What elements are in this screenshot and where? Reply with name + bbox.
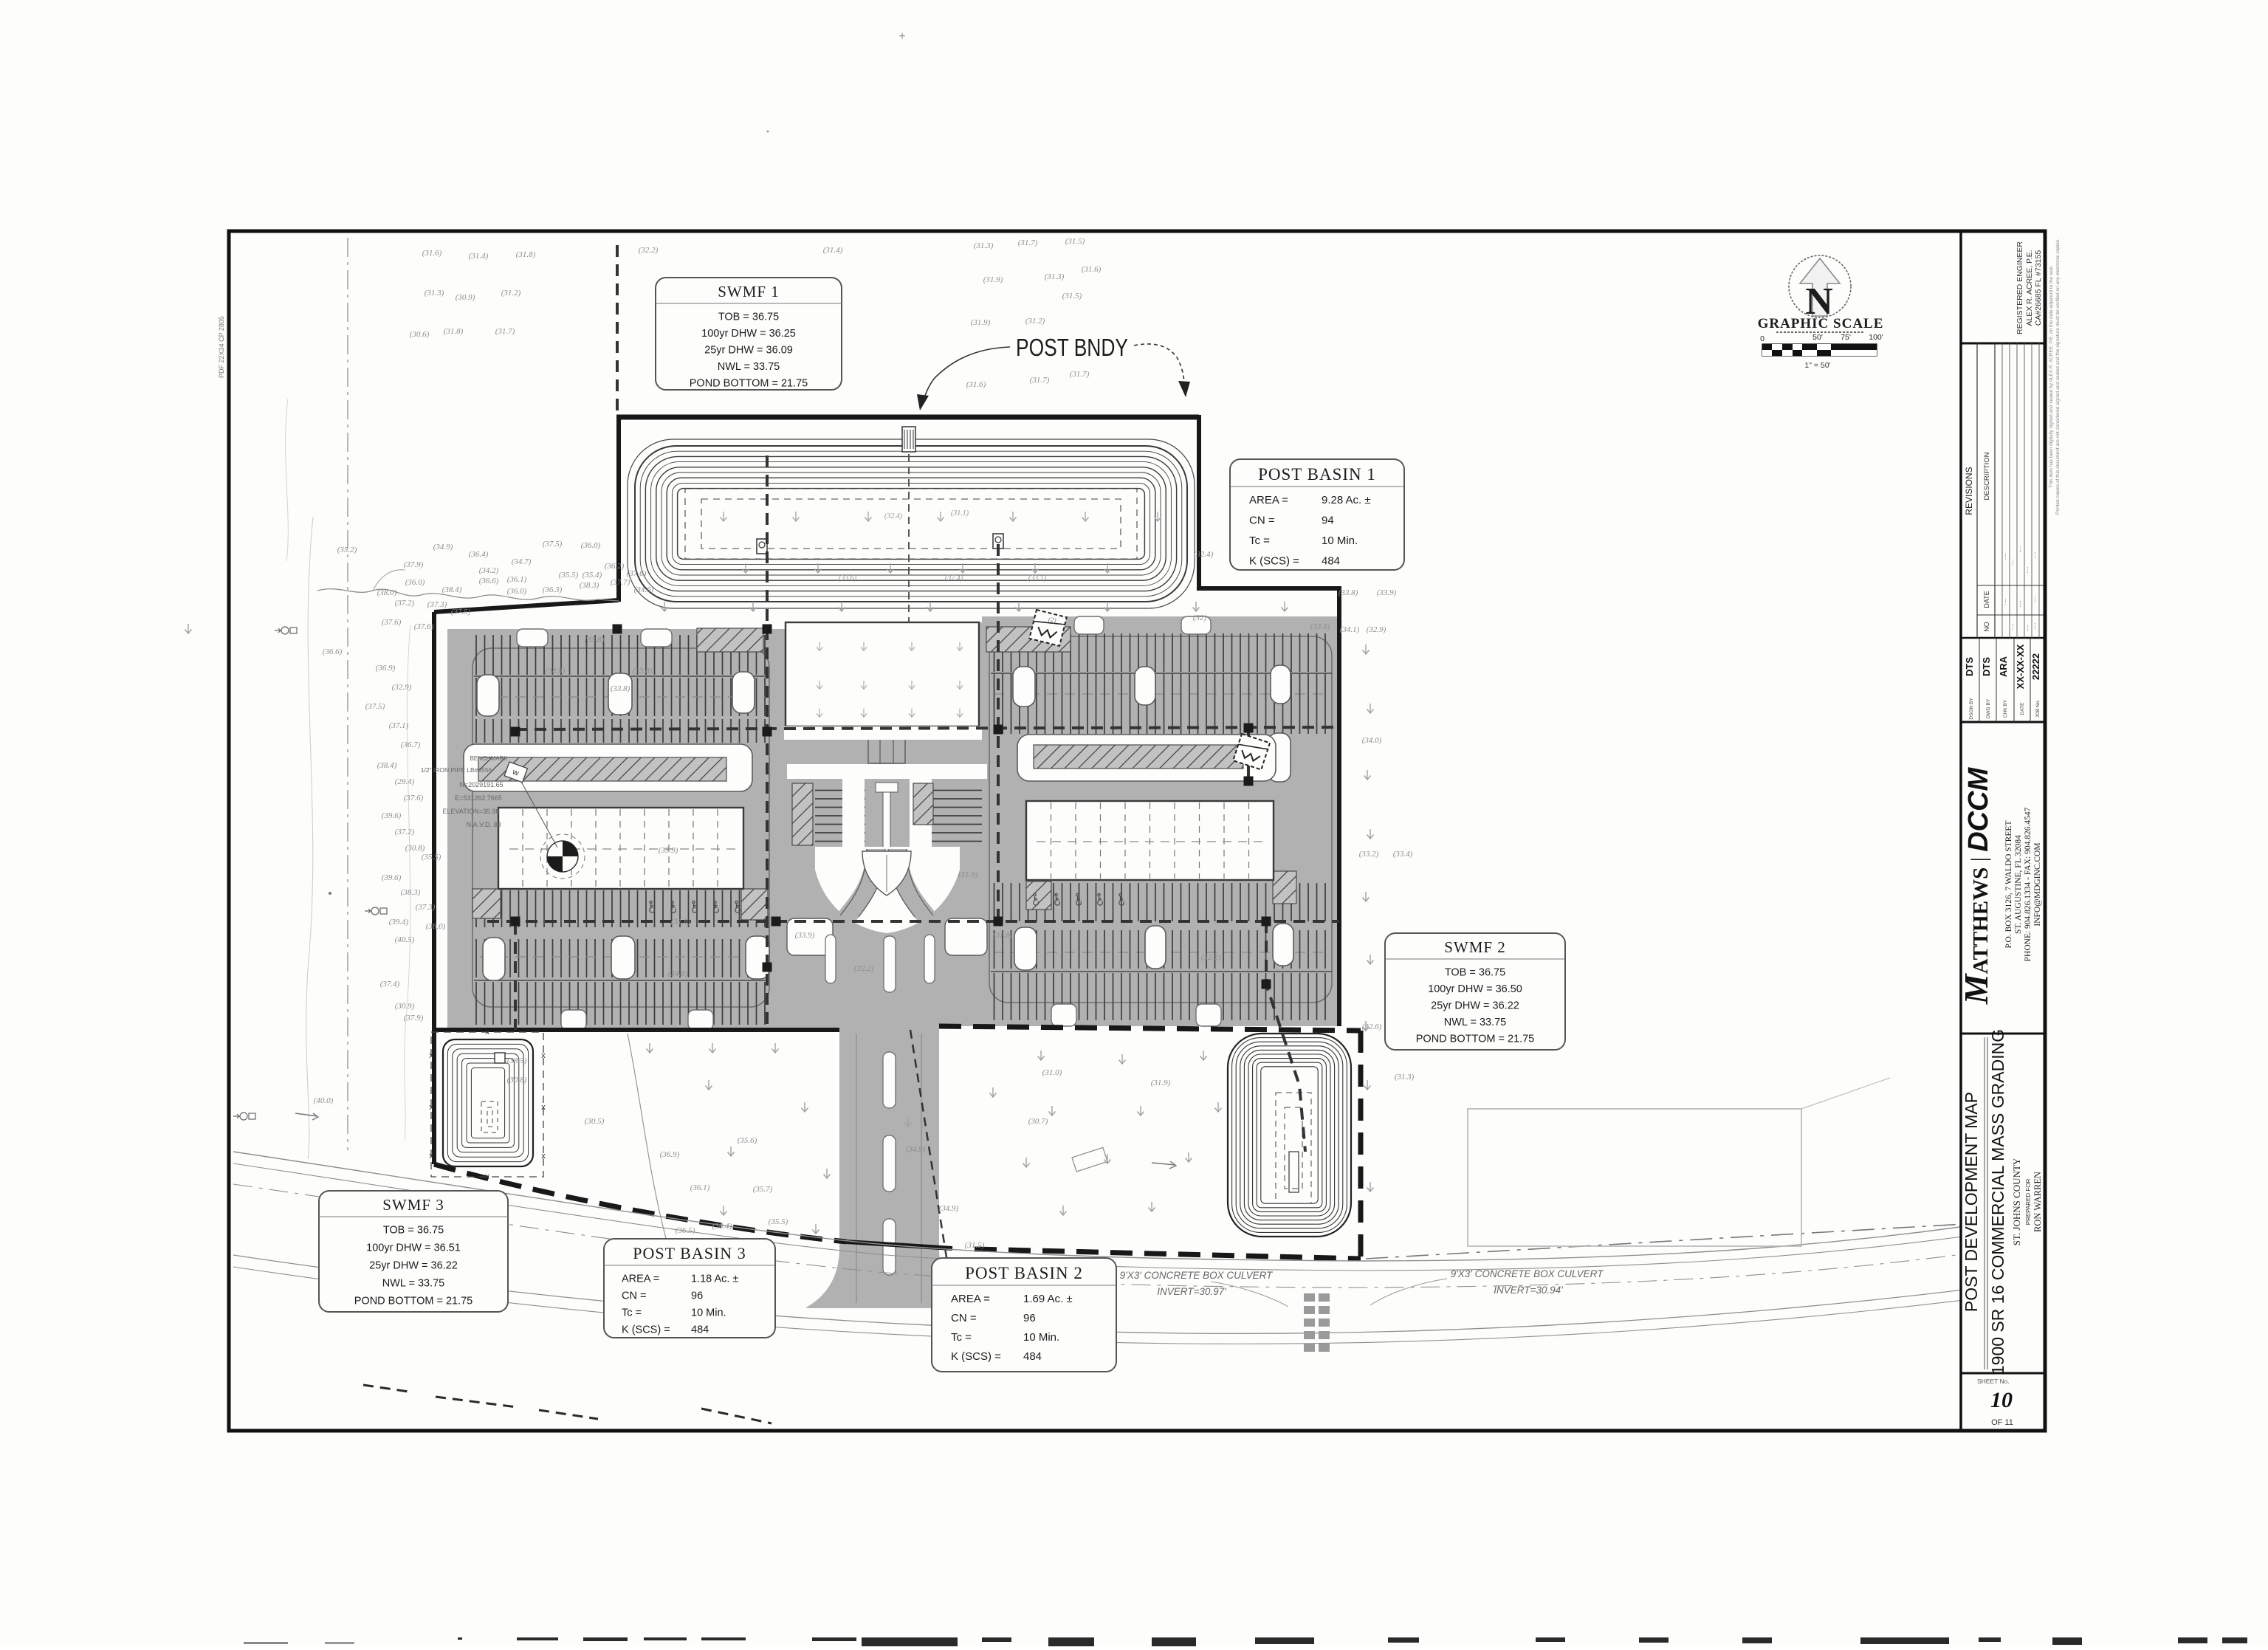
svg-text:DATE: DATE — [2020, 702, 2025, 715]
svg-text:10 Min.: 10 Min. — [691, 1307, 726, 1319]
svg-text:100yr DHW = 36.25: 100yr DHW = 36.25 — [701, 328, 796, 340]
svg-text:(31.6): (31.6) — [1082, 265, 1102, 274]
svg-text:100yr DHW = 36.50: 100yr DHW = 36.50 — [1428, 983, 1522, 995]
svg-text:P.O. BOX 3126, 7 WALDO STREET: P.O. BOX 3126, 7 WALDO STREET — [2004, 821, 2013, 949]
svg-text:Printed copies of this documen: Printed copies of this document are not … — [2055, 238, 2061, 515]
svg-text:Tc =: Tc = — [951, 1331, 972, 1344]
svg-text:(37.6): (37.6) — [414, 622, 434, 631]
svg-text:GRAPHIC SCALE: GRAPHIC SCALE — [1758, 316, 1884, 331]
svg-text:1/2" IRON PIPE LB#6556: 1/2" IRON PIPE LB#6556 — [421, 766, 492, 774]
svg-text:DTS: DTS — [1981, 657, 1992, 676]
svg-text:x: x — [541, 1051, 546, 1060]
svg-text:NWL = 33.75: NWL = 33.75 — [718, 361, 780, 373]
svg-text:(40.5): (40.5) — [395, 935, 415, 944]
svg-text:INVERT=30.94': INVERT=30.94' — [1494, 1285, 1563, 1296]
svg-text:POST BASIN 3: POST BASIN 3 — [633, 1244, 746, 1262]
svg-text:(36.6): (36.6) — [323, 647, 343, 656]
svg-text:(37.6): (37.6) — [627, 569, 647, 578]
svg-text:REVISIONS: REVISIONS — [1964, 467, 1974, 515]
svg-text:(32.2): (32.2) — [1201, 953, 1221, 962]
svg-text:484: 484 — [1023, 1350, 1042, 1363]
svg-text:(30.5): (30.5) — [585, 1117, 605, 1126]
svg-text:(30.9): (30.9) — [456, 293, 475, 302]
svg-text:AREA =: AREA = — [951, 1293, 990, 1305]
svg-text:DESCRIPTION: DESCRIPTION — [1983, 452, 1991, 500]
svg-text:(30.9): (30.9) — [395, 1002, 415, 1011]
svg-text:ARA: ARA — [1998, 656, 2009, 677]
svg-text:(29.4): (29.4) — [395, 777, 415, 786]
svg-text:x: x — [429, 1103, 433, 1112]
svg-text:(35.7): (35.7) — [753, 1185, 773, 1194]
svg-text:(36.7): (36.7) — [401, 740, 421, 749]
svg-text:(31.5): (31.5) — [1065, 237, 1085, 246]
svg-text:1.18 Ac. ±: 1.18 Ac. ± — [691, 1273, 738, 1285]
svg-text:(37.5): (37.5) — [543, 540, 563, 549]
svg-text:9'X3' CONCRETE BOX CULVERT: 9'X3' CONCRETE BOX CULVERT — [1120, 1270, 1274, 1281]
svg-text:(38.5): (38.5) — [507, 1056, 527, 1065]
svg-text:(34.8): (34.8) — [546, 667, 566, 676]
svg-text:(37.5): (37.5) — [365, 702, 385, 711]
svg-text:(35.5): (35.5) — [769, 1217, 788, 1226]
svg-text:484: 484 — [1322, 555, 1340, 568]
svg-text:25yr DHW = 36.22: 25yr DHW = 36.22 — [369, 1260, 458, 1272]
svg-text:SWMF 3: SWMF 3 — [382, 1196, 444, 1214]
svg-text:(37.6): (37.6) — [404, 794, 424, 802]
svg-text:TOB = 36.75: TOB = 36.75 — [383, 1225, 444, 1237]
svg-text:POST BASIN 1: POST BASIN 1 — [1258, 465, 1376, 484]
svg-text:(35.2): (35.2) — [337, 546, 357, 554]
svg-text:(31.8): (31.8) — [671, 918, 691, 927]
svg-text:(33.4): (33.4) — [1393, 850, 1413, 859]
svg-text:(36.1): (36.1) — [507, 575, 527, 584]
svg-text:....: .... — [2030, 552, 2037, 559]
svg-text:(31.4): (31.4) — [823, 246, 843, 255]
svg-text:100yr DHW = 36.51: 100yr DHW = 36.51 — [366, 1242, 461, 1254]
svg-text:POST BASIN 2: POST BASIN 2 — [965, 1264, 1083, 1282]
svg-text:x: x — [541, 1103, 546, 1112]
svg-text:AREA =: AREA = — [622, 1273, 659, 1285]
svg-text:9.28 Ac. ±: 9.28 Ac. ± — [1322, 494, 1371, 506]
svg-text:K (SCS) =: K (SCS) = — [622, 1324, 670, 1336]
svg-text:(37.9): (37.9) — [404, 560, 424, 569]
svg-text:(30.6): (30.6) — [410, 330, 430, 339]
svg-text:(39.4): (39.4) — [389, 918, 409, 927]
svg-text:DTS: DTS — [1964, 657, 1975, 676]
svg-text:INFO@MDGINC.COM: INFO@MDGINC.COM — [2033, 842, 2042, 926]
svg-text:(37.1): (37.1) — [389, 721, 409, 730]
svg-text:(38.0): (38.0) — [426, 922, 446, 931]
svg-text:(35.5): (35.5) — [559, 571, 579, 580]
svg-text:(38.4): (38.4) — [442, 585, 462, 594]
svg-text:PREPARED FOR: PREPARED FOR — [2025, 1179, 2032, 1226]
svg-text:(36.0): (36.0) — [405, 578, 425, 587]
svg-text:BENCHMARK: BENCHMARK — [470, 755, 508, 762]
svg-text:POND BOTTOM = 21.75: POND BOTTOM = 21.75 — [1416, 1034, 1535, 1045]
svg-text:(31.9): (31.9) — [1151, 1079, 1171, 1087]
svg-text:(32.2): (32.2) — [854, 964, 874, 973]
svg-text:(31.1): (31.1) — [951, 509, 969, 518]
svg-text:XX-XX-XX: XX-XX-XX — [2015, 644, 2026, 689]
svg-text:E=531262.7665: E=531262.7665 — [455, 794, 502, 802]
svg-text:(33.8): (33.8) — [633, 667, 653, 676]
svg-text:(32): (32) — [1193, 613, 1207, 622]
svg-text:N=2029191.65: N=2029191.65 — [459, 781, 503, 788]
svg-text:(36.3): (36.3) — [543, 585, 563, 594]
svg-text:(33.6): (33.6) — [839, 574, 857, 582]
svg-text:(33.1): (33.1) — [1028, 574, 1047, 582]
svg-text:(31.5): (31.5) — [1062, 292, 1082, 300]
svg-text:x: x — [429, 1152, 433, 1161]
svg-text:INVERT=30.97': INVERT=30.97' — [1157, 1286, 1226, 1297]
svg-text:(38.3): (38.3) — [401, 888, 421, 897]
svg-text:(37.3): (37.3) — [427, 600, 447, 609]
svg-text:x: x — [541, 1152, 546, 1161]
svg-text:(33.8): (33.8) — [611, 684, 630, 693]
svg-text:POST BNDY: POST BNDY — [1016, 334, 1128, 361]
svg-text:(32.2): (32.2) — [639, 246, 659, 255]
svg-text:(33.2): (33.2) — [1359, 850, 1379, 859]
svg-text:....: .... — [2030, 597, 2037, 603]
svg-text:(34.8): (34.8) — [668, 969, 688, 978]
svg-text:(39.6): (39.6) — [382, 873, 402, 882]
svg-text:NO: NO — [1983, 622, 1990, 632]
svg-text:(31.8): (31.8) — [516, 250, 536, 259]
svg-text:N.A.V.D. 88: N.A.V.D. 88 — [467, 821, 501, 828]
svg-text:(34.7): (34.7) — [512, 557, 532, 566]
svg-text:(33.9): (33.9) — [1377, 588, 1397, 597]
svg-text:OF 11: OF 11 — [1991, 1418, 2013, 1427]
svg-text:(30.7): (30.7) — [1028, 1117, 1048, 1126]
svg-text:(31.8): (31.8) — [993, 931, 1013, 940]
svg-text:(36.9): (36.9) — [376, 664, 396, 673]
svg-text:(33.8): (33.8) — [1310, 622, 1330, 631]
svg-text:(38.4): (38.4) — [377, 761, 397, 770]
svg-text:(37.6): (37.6) — [382, 618, 402, 627]
svg-text:10 Min.: 10 Min. — [1023, 1331, 1059, 1344]
svg-text:(37.2): (37.2) — [395, 599, 415, 608]
svg-text:(34.1): (34.1) — [1340, 625, 1360, 634]
svg-text:(36.2): (36.2) — [605, 562, 625, 571]
svg-text:POND BOTTOM = 21.75: POND BOTTOM = 21.75 — [354, 1296, 473, 1307]
svg-text:(32.9): (32.9) — [1367, 625, 1386, 634]
svg-text:....: .... — [2016, 601, 2022, 608]
svg-text:(31.0): (31.0) — [1042, 1068, 1062, 1077]
svg-text:SHEET No.: SHEET No. — [1977, 1378, 2010, 1385]
svg-text:22222: 22222 — [2030, 653, 2041, 680]
svg-text:(31.7): (31.7) — [495, 327, 515, 336]
svg-text:DATE: DATE — [1983, 591, 1990, 608]
svg-text:DWG BY: DWG BY — [1986, 698, 1991, 718]
svg-text:(31.5): (31.5) — [965, 1241, 985, 1250]
svg-text:x: x — [429, 1051, 433, 1060]
svg-text:....: .... — [2016, 546, 2022, 553]
svg-text:(36.0): (36.0) — [581, 541, 601, 550]
svg-text:CN =: CN = — [951, 1312, 977, 1324]
svg-text:(38.4): (38.4) — [712, 1222, 732, 1231]
svg-text:96: 96 — [691, 1290, 703, 1302]
svg-text:(36.5): (36.5) — [676, 1226, 695, 1235]
svg-text:K (SCS) =: K (SCS) = — [951, 1350, 1001, 1363]
svg-text:+: + — [898, 30, 905, 43]
svg-text:100': 100' — [1869, 333, 1883, 342]
svg-text:1900 SR 16 COMMERCIAL MASS GRA: 1900 SR 16 COMMERCIAL MASS GRADING — [1988, 1029, 2007, 1375]
svg-text:0: 0 — [1760, 334, 1764, 343]
svg-text:(34.2): (34.2) — [479, 566, 499, 575]
svg-text:POND BOTTOM = 21.75: POND BOTTOM = 21.75 — [690, 378, 808, 390]
svg-text:ALEX R. ACREE, P.E.: ALEX R. ACREE, P.E. — [2025, 250, 2034, 326]
svg-text:x: x — [485, 1028, 489, 1037]
svg-text:(31.3): (31.3) — [974, 241, 994, 250]
svg-text:Tc =: Tc = — [1249, 534, 1270, 547]
svg-text:(37.9): (37.9) — [404, 1014, 424, 1022]
svg-text:(40.0): (40.0) — [314, 1096, 334, 1105]
svg-text:(31.2): (31.2) — [1025, 317, 1045, 326]
svg-text:(37.5): (37.5) — [451, 608, 471, 616]
svg-text:(31.6): (31.6) — [966, 380, 986, 389]
svg-text:....: .... — [2023, 567, 2030, 574]
svg-text:(39.6): (39.6) — [382, 811, 402, 820]
svg-text:1" = 50': 1" = 50' — [1804, 361, 1830, 370]
svg-text:RON WARREN: RON WARREN — [2032, 1172, 2043, 1232]
svg-text:NWL = 33.75: NWL = 33.75 — [382, 1278, 445, 1290]
svg-text:(37.4): (37.4) — [380, 980, 400, 989]
svg-text:(33.9): (33.9) — [795, 931, 815, 940]
svg-text:PHONE: 904.826.1334 - FAX: 9: PHONE: 904.826.1334 - FAX: 904.826.4547 — [2024, 807, 2032, 961]
svg-text:(36.1): (36.1) — [690, 1183, 710, 1192]
svg-text:96: 96 — [1023, 1312, 1036, 1324]
svg-text:75': 75' — [1841, 333, 1851, 342]
svg-text:(31.3): (31.3) — [1045, 272, 1065, 281]
svg-text:PDF 22X34 CP 2805: PDF 22X34 CP 2805 — [218, 316, 225, 378]
svg-text:(31.7): (31.7) — [1070, 370, 1090, 379]
svg-text:(34.9): (34.9) — [433, 543, 453, 551]
svg-text:(30.8): (30.8) — [507, 1076, 527, 1084]
svg-text:25yr DHW = 36.22: 25yr DHW = 36.22 — [1431, 1000, 1519, 1012]
svg-text:....: .... — [2030, 623, 2037, 630]
svg-text:TOB = 36.75: TOB = 36.75 — [1445, 967, 1505, 979]
svg-text:ELEVATION=35.90: ELEVATION=35.90 — [443, 808, 500, 815]
svg-text:CHK BY: CHK BY — [2003, 699, 2008, 718]
svg-text:ST. AUGUSTINE, FL 32084: ST. AUGUSTINE, FL 32084 — [2014, 835, 2023, 934]
svg-text:SWMF 2: SWMF 2 — [1444, 938, 1506, 956]
svg-text:CA#26685 FL #73155: CA#26685 FL #73155 — [2034, 250, 2043, 326]
svg-text:(33.8): (33.8) — [1339, 588, 1358, 597]
svg-text:10 Min.: 10 Min. — [1322, 534, 1358, 547]
svg-text:(36.0): (36.0) — [507, 587, 527, 596]
svg-text:25yr DHW = 36.09: 25yr DHW = 36.09 — [704, 345, 793, 357]
svg-text:(31.9): (31.9) — [971, 318, 991, 327]
svg-text:(31.7): (31.7) — [1018, 238, 1038, 247]
svg-text:(34.9): (34.9) — [906, 1145, 926, 1154]
svg-text:....: .... — [2008, 560, 2015, 566]
svg-text:50': 50' — [1812, 333, 1823, 342]
svg-text:94: 94 — [1322, 515, 1334, 527]
svg-text:(31.4): (31.4) — [469, 252, 489, 261]
svg-text:NWL = 33.75: NWL = 33.75 — [1444, 1017, 1507, 1028]
svg-text:(30.8): (30.8) — [405, 844, 425, 853]
svg-text:JOB No.: JOB No. — [2035, 700, 2041, 718]
svg-text:(35.6): (35.6) — [738, 1136, 757, 1145]
svg-text:(38.3): (38.3) — [580, 581, 599, 590]
svg-text:....: .... — [2001, 599, 2007, 605]
svg-text:Tc =: Tc = — [622, 1307, 642, 1319]
svg-text:10: 10 — [1990, 1388, 2013, 1412]
svg-text:(33.8): (33.8) — [585, 636, 605, 644]
svg-text:ST. JOHNS COUNTY: ST. JOHNS COUNTY — [2011, 1158, 2022, 1245]
svg-text:(31.7): (31.7) — [1030, 376, 1050, 385]
svg-text:This item has been digitally s: This item has been digitally signed and … — [2049, 265, 2054, 487]
svg-text:(32.4): (32.4) — [1194, 550, 1214, 559]
svg-text:(37.3): (37.3) — [416, 903, 436, 912]
svg-text:SWMF 1: SWMF 1 — [718, 283, 780, 300]
svg-text:....: .... — [2001, 554, 2007, 560]
svg-text:(34.6): (34.6) — [634, 585, 654, 594]
svg-text:K (SCS) =: K (SCS) = — [1249, 555, 1299, 568]
svg-text:....: .... — [2023, 625, 2030, 632]
svg-text:(35.4): (35.4) — [583, 571, 602, 580]
svg-text:(31.9): (31.9) — [983, 275, 1003, 284]
svg-text:AREA =: AREA = — [1249, 494, 1288, 506]
svg-text:484: 484 — [691, 1324, 709, 1336]
svg-text:TOB = 36.75: TOB = 36.75 — [718, 312, 779, 323]
svg-text:(31.3): (31.3) — [1395, 1073, 1415, 1082]
svg-text:(31.2): (31.2) — [501, 289, 521, 298]
svg-text:(36.6): (36.6) — [479, 577, 499, 585]
svg-text:(31.8): (31.8) — [444, 327, 464, 336]
svg-text:REGISTERED ENGINEER: REGISTERED ENGINEER — [2016, 241, 2024, 334]
svg-text:(34.0): (34.0) — [1362, 736, 1382, 745]
svg-text:(34.9): (34.9) — [939, 1204, 959, 1213]
svg-text:(36.9): (36.9) — [660, 1150, 680, 1159]
svg-text:1.69 Ac. ±: 1.69 Ac. ± — [1023, 1293, 1073, 1305]
svg-text:(37.7): (37.7) — [611, 578, 630, 587]
svg-text:(31.9): (31.9) — [958, 870, 978, 879]
svg-text:(32.4): (32.4) — [884, 512, 903, 520]
svg-text:(31.6): (31.6) — [422, 249, 442, 258]
svg-text:9'X3' CONCRETE BOX CULVERT: 9'X3' CONCRETE BOX CULVERT — [1451, 1268, 1604, 1279]
svg-text:POST DEVELOPMENT MAP: POST DEVELOPMENT MAP — [1962, 1092, 1981, 1312]
svg-text:(36.4): (36.4) — [469, 550, 489, 559]
svg-text:(35.9): (35.9) — [659, 846, 678, 855]
svg-text:(31.3): (31.3) — [425, 289, 444, 298]
svg-text:DSGN BY: DSGN BY — [1969, 698, 1974, 720]
svg-text:x: x — [485, 1172, 489, 1181]
svg-text:CN =: CN = — [1249, 515, 1275, 527]
svg-text:(38.0): (38.0) — [377, 588, 397, 597]
svg-text:(37.4): (37.4) — [945, 574, 963, 582]
svg-text:(32.9): (32.9) — [392, 683, 412, 692]
svg-text:CN =: CN = — [622, 1290, 646, 1302]
svg-text:(35.5): (35.5) — [422, 853, 441, 862]
svg-text:....: .... — [2008, 624, 2015, 630]
svg-text:(37.2): (37.2) — [395, 828, 415, 836]
